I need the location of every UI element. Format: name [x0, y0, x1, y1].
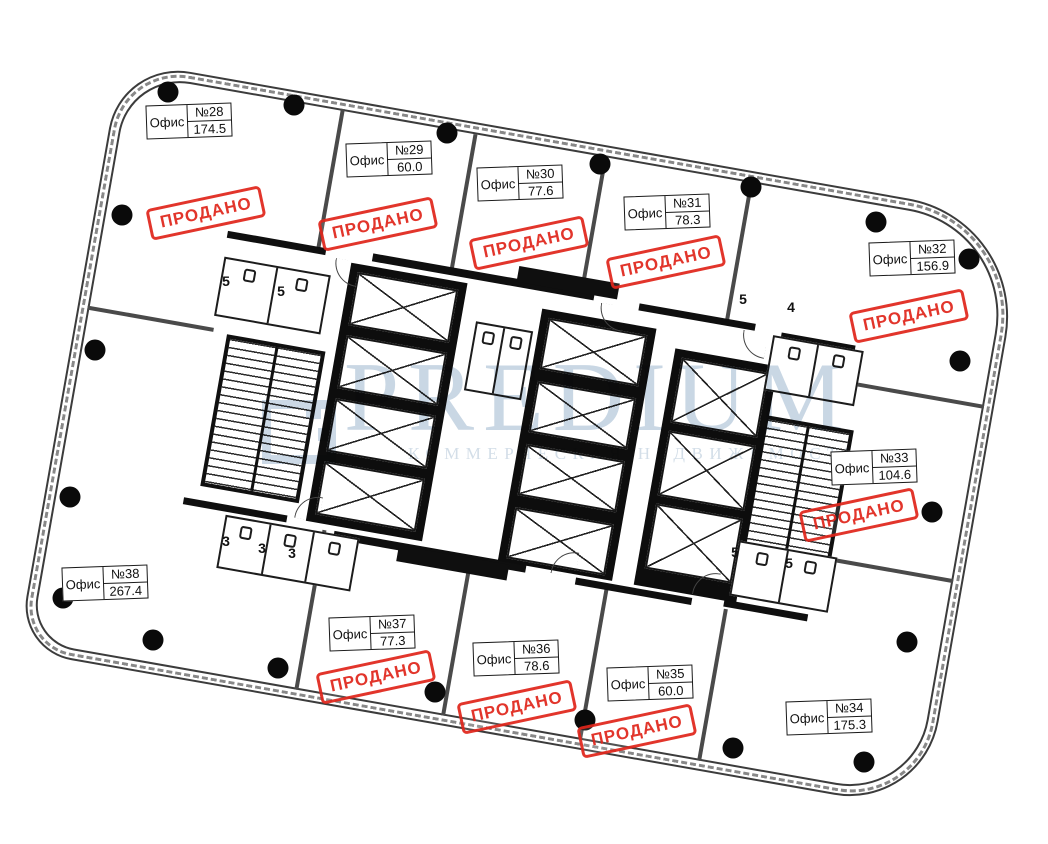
- column: [284, 95, 305, 116]
- column: [425, 682, 446, 703]
- room-number: 3: [222, 533, 230, 549]
- column: [866, 212, 887, 233]
- office-label-31[interactable]: Офис №3178.3: [623, 194, 710, 231]
- wc-room: [307, 533, 358, 590]
- office-label-32[interactable]: Офис №32156.9: [868, 240, 955, 277]
- room-number: 5: [739, 291, 747, 307]
- room-number: 5: [277, 283, 285, 299]
- wc-room: [269, 268, 329, 332]
- column: [85, 340, 106, 361]
- elevator-cell: [540, 318, 648, 387]
- wc-room: [810, 345, 861, 404]
- office-label-30[interactable]: Офис №3077.6: [476, 165, 563, 202]
- floor-plan: PREDIUM КОММЕРЧЕСКАЯ НЕДВИЖИМОСТЬ: [0, 0, 1048, 844]
- wc-rooms: [464, 321, 533, 400]
- office-label-29[interactable]: Офис №2960.0: [345, 141, 432, 178]
- office-label-38[interactable]: Офис №38267.4: [61, 565, 148, 602]
- room-number: 5: [785, 555, 793, 571]
- column: [143, 630, 164, 651]
- wc-room: [216, 259, 278, 323]
- column: [158, 82, 179, 103]
- room-number: 5: [222, 273, 230, 289]
- elevator-cell: [529, 381, 637, 450]
- column: [60, 487, 81, 508]
- column: [590, 154, 611, 175]
- room-number: 4: [787, 299, 795, 315]
- column: [897, 632, 918, 653]
- column: [723, 738, 744, 759]
- column: [268, 658, 289, 679]
- column: [854, 752, 875, 773]
- office-label-37[interactable]: Офис №3777.3: [328, 615, 415, 652]
- elevator-cell: [348, 272, 458, 343]
- office-label-33[interactable]: Офис №33104.6: [830, 449, 917, 486]
- column: [741, 177, 762, 198]
- elevator-cell: [326, 398, 436, 469]
- room-number: 3: [288, 545, 296, 561]
- office-label-36[interactable]: Офис №3678.6: [472, 640, 559, 677]
- elevator-cell: [658, 430, 756, 510]
- office-label-34[interactable]: Офис №34175.3: [785, 699, 872, 736]
- column: [959, 249, 980, 270]
- office-label-35[interactable]: Офис №3560.0: [606, 665, 693, 702]
- elevator-cell: [517, 444, 625, 513]
- room-number: 3: [258, 540, 266, 556]
- column: [112, 205, 133, 226]
- column: [950, 351, 971, 372]
- elevator-cell: [315, 461, 425, 532]
- elevator-cell: [670, 358, 768, 438]
- office-label-28[interactable]: Офис №28174.5: [145, 103, 232, 140]
- column: [437, 123, 458, 144]
- elevator-cell: [337, 335, 447, 406]
- column: [922, 502, 943, 523]
- elevator-cell: [645, 503, 743, 583]
- room-number: 5: [731, 544, 739, 560]
